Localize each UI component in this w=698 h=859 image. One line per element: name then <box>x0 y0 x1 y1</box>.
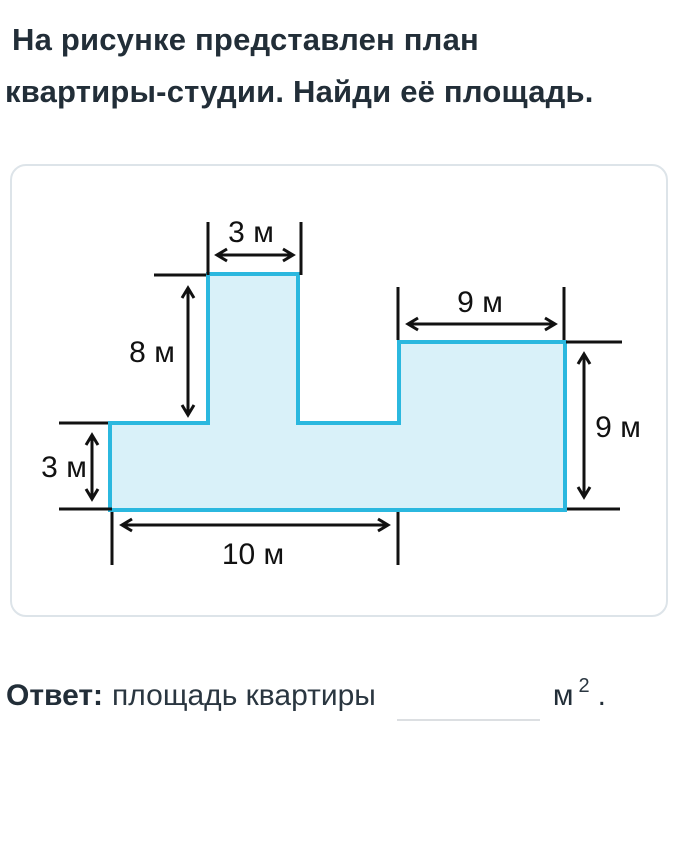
dimension-label-tower-width: 3 м <box>228 216 274 249</box>
dimension-block-height: 9 м <box>567 354 641 509</box>
dimension-label-tower-height: 8 м <box>129 336 175 369</box>
answer-period: . <box>598 678 606 714</box>
answer-unit: м <box>553 678 574 714</box>
dimension-label-block-height: 9 м <box>595 411 641 444</box>
answer-prompt: площадь квартиры <box>112 678 376 714</box>
answer-exponent: 2 <box>578 668 589 704</box>
dimension-strip-height: 3 м <box>41 423 112 509</box>
dimension-label-bottom-width: 10 м <box>222 538 284 571</box>
dimension-label-block-width: 9 м <box>457 286 503 319</box>
floor-plan-diagram: 3 м 8 м 9 м 9 м 3 м <box>12 166 670 619</box>
figure-card: 3 м 8 м 9 м 9 м 3 м <box>10 164 668 617</box>
dimension-tower-width: 3 м <box>154 216 301 275</box>
dimension-bottom-width: 10 м <box>112 512 398 571</box>
answer-row: Ответ: площадь квартиры м 2 . <box>6 678 606 717</box>
answer-input[interactable] <box>397 687 540 721</box>
problem-title-line2: квартиры-студии. Найди её площадь. <box>5 74 594 110</box>
problem-title-line1: На рисунке представлен план <box>12 22 479 58</box>
dimension-block-width: 9 м <box>398 286 622 342</box>
answer-label: Ответ: <box>6 678 103 714</box>
dimension-tower-height: 8 м <box>129 288 188 415</box>
dimension-label-strip-height: 3 м <box>41 451 87 484</box>
